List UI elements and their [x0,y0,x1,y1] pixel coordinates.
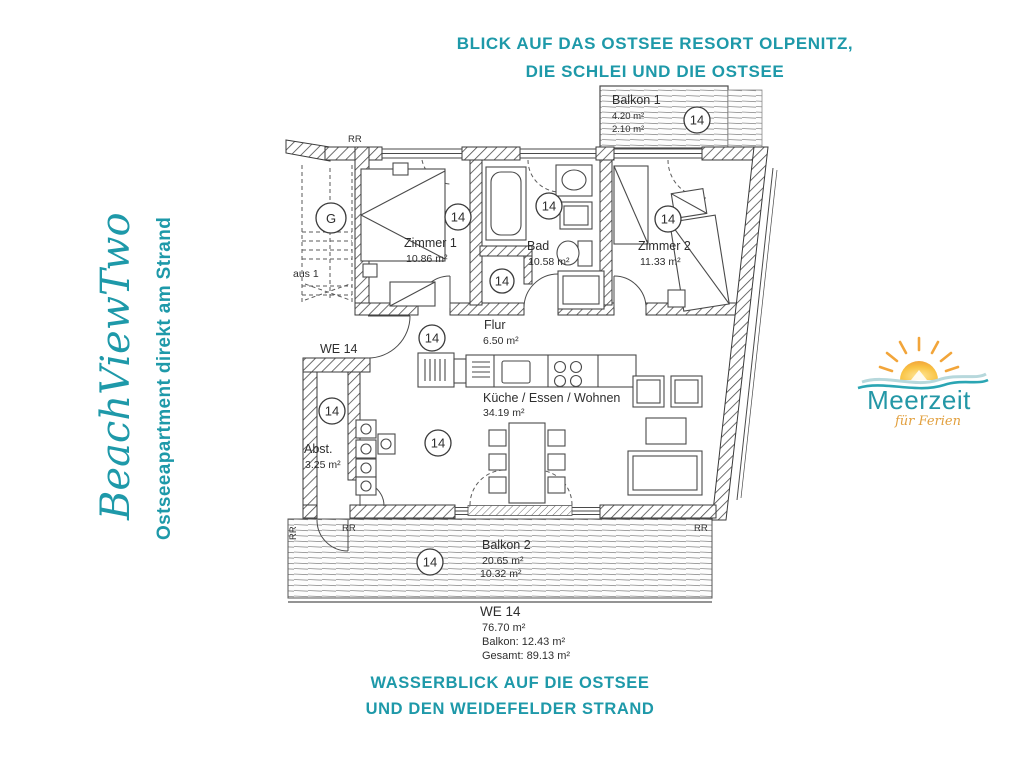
summary-unit: WE 14 [480,604,521,619]
balkon2-area-full: 20.65 m² [482,555,524,567]
badge-zimmer2: 14 [661,212,675,227]
zimmer2-name: Zimmer 2 [638,239,691,253]
flur-area: 6.50 m² [483,335,519,347]
badge-abst: 14 [325,404,339,419]
balkon2-name: Balkon 2 [482,538,531,552]
zimmer2-area: 11.33 m² [640,256,681,268]
wardrobe-zimmer2 [614,166,648,244]
unit-label: WE 14 [320,342,358,356]
badge-balkon1: 14 [690,113,704,128]
badge-wc: 14 [495,274,509,289]
dining-table [489,423,565,503]
balkon1: Balkon 1 4.20 m² 2.10 m² [600,86,762,148]
summary-balkon: Balkon: 12.43 m² [482,636,565,648]
balkon1-name: Balkon 1 [612,93,661,107]
stair-text: aus 1 [293,268,319,280]
coffee-table [646,418,686,444]
armchairs [633,376,702,407]
rr-top: RR [348,134,362,145]
abst-name: Abst. [304,442,333,456]
badge-bad: 14 [542,199,556,214]
summary-block: WE 14 76.70 m² Balkon: 12.43 m² Gesamt: … [480,604,570,662]
summary-gesamt: Gesamt: 89.13 m² [482,650,570,662]
bath-cabinet [560,202,592,229]
zimmer1-area: 10.86 m² [406,253,448,265]
sofa [628,451,702,495]
badge-wohnen: 14 [431,436,445,451]
stair-circle-label: G [326,211,336,226]
balkon1-area-full: 4.20 m² [612,111,644,122]
bathtub [486,167,526,240]
wohnen-name: Küche / Essen / Wohnen [483,391,620,405]
rr-bottom-right: RR [694,523,708,534]
nightstand-zimmer2 [668,290,685,307]
bad-area: 10.58 m² [528,256,570,268]
shower [558,271,604,309]
rr-bottom-mid: RR [342,523,356,534]
badge-zimmer1: 14 [451,210,465,225]
stools [356,420,395,495]
badge-flur: 14 [425,331,439,346]
floor-plan: Balkon 1 4.20 m² 2.10 m² Balkon 2 20.65 … [0,0,1024,768]
balkon1-area-half: 2.10 m² [612,124,644,135]
stairwell [302,165,352,305]
zimmer1-name: Zimmer 1 [404,236,457,250]
balkon2-area-half: 10.32 m² [480,568,522,580]
badge-balkon2: 14 [423,555,437,570]
rr-bottom-left: RR [288,526,299,540]
washbasin [556,165,592,196]
desk-zimmer1 [390,282,435,306]
kitchen-counter [466,355,636,387]
summary-area: 76.70 m² [482,622,526,634]
wohnen-area: 34.19 m² [483,407,525,419]
balcony-door-sill [468,506,572,516]
flur-name: Flur [484,318,506,332]
bad-name: Bad [527,239,549,253]
kitchen-island [418,353,466,387]
abst-area: 3.25 m² [305,459,341,471]
